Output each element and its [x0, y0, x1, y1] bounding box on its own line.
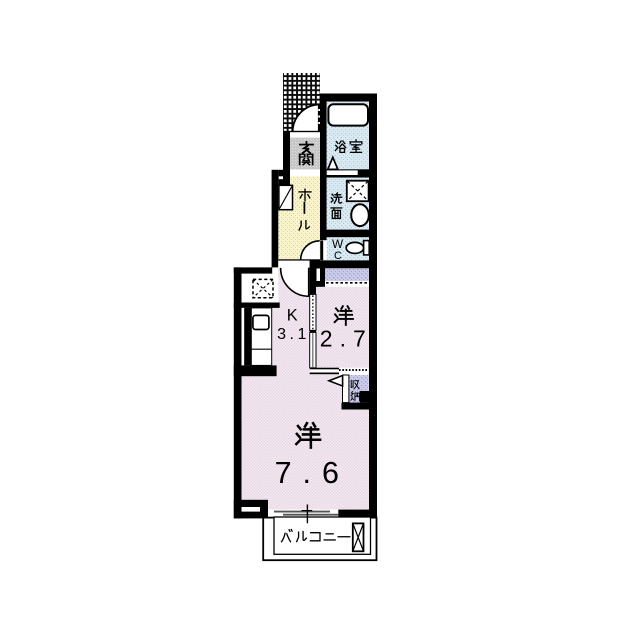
- svg-text:C: C: [334, 250, 342, 262]
- svg-text:7.6: 7.6: [275, 456, 350, 490]
- svg-text:K: K: [287, 307, 298, 325]
- svg-text:3.1: 3.1: [277, 326, 310, 343]
- svg-text:2.7: 2.7: [320, 326, 373, 352]
- svg-text:W: W: [332, 237, 344, 251]
